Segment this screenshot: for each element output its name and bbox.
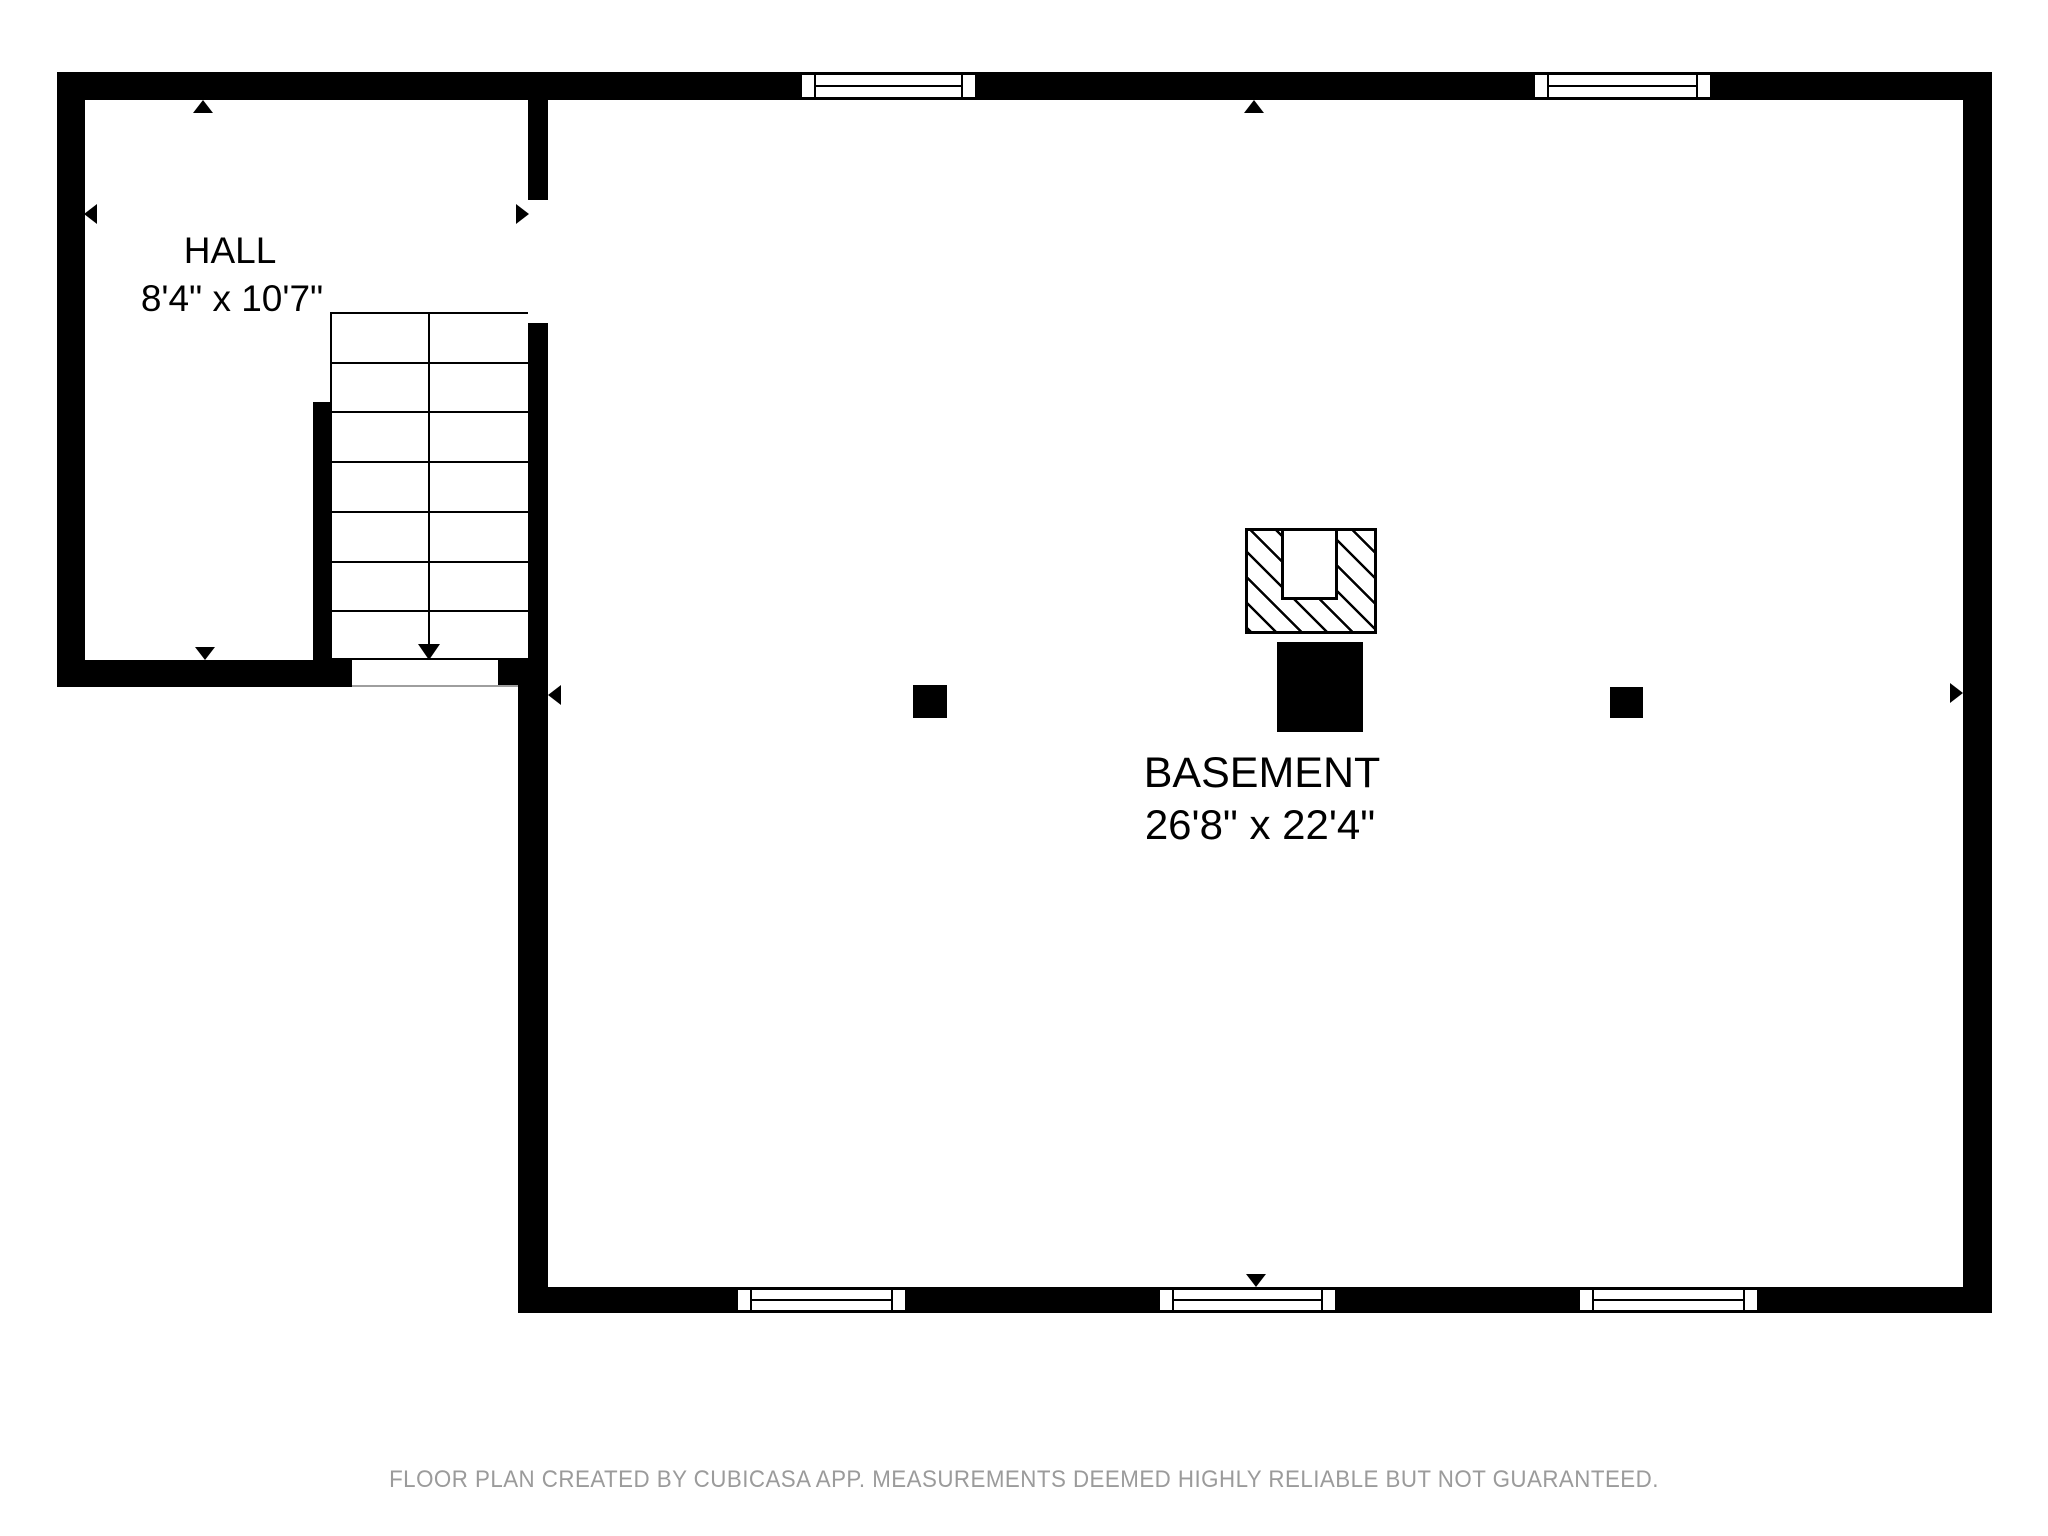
top-window-2 — [1535, 72, 1710, 100]
chimney-notch — [1281, 528, 1338, 600]
window-mid-line — [1593, 1299, 1744, 1301]
door-threshold-line — [352, 685, 518, 687]
chimney-flue — [1277, 642, 1363, 732]
hall-basement-divider-wall — [528, 100, 548, 660]
window-mid-line — [751, 1299, 892, 1301]
stair-divider-line — [428, 314, 430, 644]
measurement-arrow-right — [1950, 683, 1963, 703]
floor-plan-canvas — [0, 0, 2048, 1536]
column-post — [1610, 687, 1643, 718]
window-mid-line — [1548, 85, 1697, 87]
top-window-1 — [802, 72, 975, 100]
floor-plan-page: HALL 8'4" x 10'7" BASEMENT 26'8" x 22'4"… — [0, 0, 2048, 1536]
footer-disclaimer: FLOOR PLAN CREATED BY CUBICASA APP. MEAS… — [389, 1466, 1659, 1494]
bottom-window-2 — [1160, 1287, 1335, 1313]
right-exterior-wall — [1963, 72, 1992, 1313]
measurement-arrow-down — [195, 647, 215, 660]
stair-step-line — [332, 511, 528, 513]
hall-to-basement-door-opening — [528, 200, 548, 323]
stair-corner-block — [498, 660, 548, 687]
measurement-arrow-up — [193, 100, 213, 113]
basement-room-label: BASEMENT — [1144, 750, 1381, 797]
stair-step-line — [332, 561, 528, 563]
basement-left-exterior-wall — [518, 687, 548, 1313]
hall-left-exterior-wall — [57, 72, 85, 687]
stair-step-line — [332, 411, 528, 413]
stair-step-line — [332, 461, 528, 463]
bottom-window-1 — [738, 1287, 905, 1313]
column-post — [913, 685, 947, 718]
hall-room-dimensions: 8'4" x 10'7" — [141, 279, 323, 320]
measurement-arrow-left — [84, 204, 97, 224]
measurement-arrow-up — [1244, 100, 1264, 113]
stair-down-arrow-head — [418, 644, 440, 660]
window-mid-line — [815, 85, 962, 87]
hall-room-label: HALL — [184, 231, 277, 272]
hall-bottom-wall — [57, 660, 352, 687]
measurement-arrow-right — [516, 204, 529, 224]
stair-step-line — [332, 362, 528, 364]
measurement-arrow-left — [548, 685, 561, 705]
basement-room-dimensions: 26'8" x 22'4" — [1145, 802, 1375, 848]
bottom-window-3 — [1580, 1287, 1757, 1313]
window-mid-line — [1173, 1299, 1322, 1301]
stair-step-line — [332, 610, 528, 612]
stair-side-wall-stub — [313, 402, 330, 660]
measurement-arrow-down — [1246, 1274, 1266, 1287]
staircase — [330, 312, 528, 660]
stair-bottom-door-opening — [352, 660, 498, 687]
